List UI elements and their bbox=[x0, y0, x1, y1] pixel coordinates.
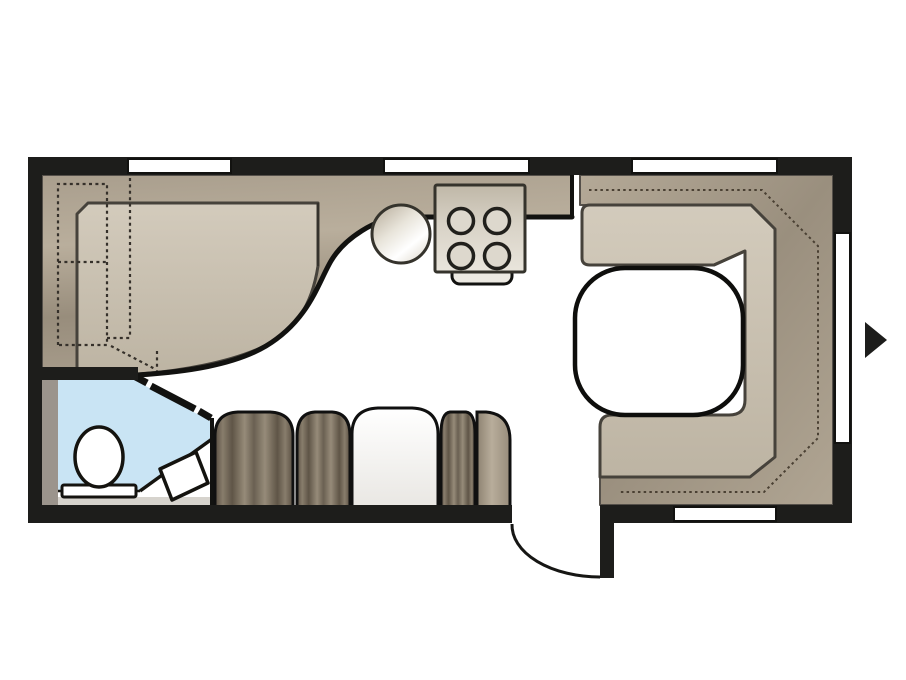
window-top-3 bbox=[632, 159, 777, 173]
shower-trim-left bbox=[42, 378, 58, 507]
window-right bbox=[835, 233, 850, 443]
floorplan-canvas bbox=[0, 0, 906, 680]
burner-icon bbox=[449, 244, 474, 269]
floorplan-svg bbox=[0, 0, 906, 680]
bench-cushion bbox=[441, 412, 475, 507]
burner-icon bbox=[485, 209, 510, 234]
bench-cushion bbox=[297, 412, 350, 507]
side-bench bbox=[215, 408, 510, 507]
bathroom bbox=[42, 375, 212, 507]
window-top-2 bbox=[384, 159, 529, 173]
bedroom-bathroom-wall bbox=[42, 367, 138, 380]
bench-segment-white bbox=[352, 408, 438, 507]
wall-bottom-left bbox=[28, 505, 512, 523]
burner-icon bbox=[449, 209, 474, 234]
burner-icon bbox=[485, 244, 510, 269]
window-bottom bbox=[674, 507, 776, 521]
wall-left bbox=[28, 157, 42, 523]
kitchen-sink bbox=[372, 205, 430, 263]
lounge-table bbox=[575, 268, 743, 415]
rear-lounge bbox=[575, 175, 833, 505]
bench-corner-segment bbox=[477, 412, 510, 507]
toilet bbox=[75, 427, 123, 487]
entry-door-leaf bbox=[600, 505, 614, 578]
window-top-1 bbox=[128, 159, 231, 173]
bench-cushion bbox=[215, 412, 293, 507]
